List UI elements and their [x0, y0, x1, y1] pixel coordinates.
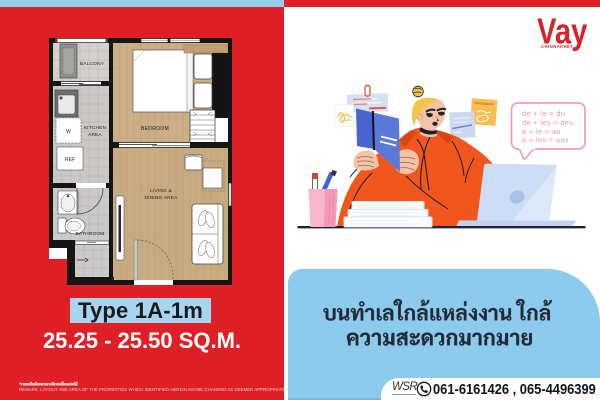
svg-text:AREA: AREA	[88, 132, 102, 138]
svg-text:BATHROOM: BATHROOM	[76, 231, 105, 237]
svg-text:à + les = aux: à + les = aux	[522, 136, 569, 145]
svg-text:REF: REF	[65, 157, 75, 163]
svg-text:KITCHEN: KITCHEN	[84, 125, 107, 131]
svg-text:BEDROOM: BEDROOM	[141, 126, 169, 132]
svg-text:W: W	[66, 129, 71, 135]
svg-text:de + les = des: de + les = des	[522, 118, 573, 127]
svg-text:BALCONY: BALCONY	[80, 61, 105, 67]
svg-text:DINING AREA: DINING AREA	[144, 195, 178, 201]
svg-text:LIVING &: LIVING &	[150, 188, 172, 194]
svg-text:de + le = du: de + le = du	[522, 109, 565, 118]
